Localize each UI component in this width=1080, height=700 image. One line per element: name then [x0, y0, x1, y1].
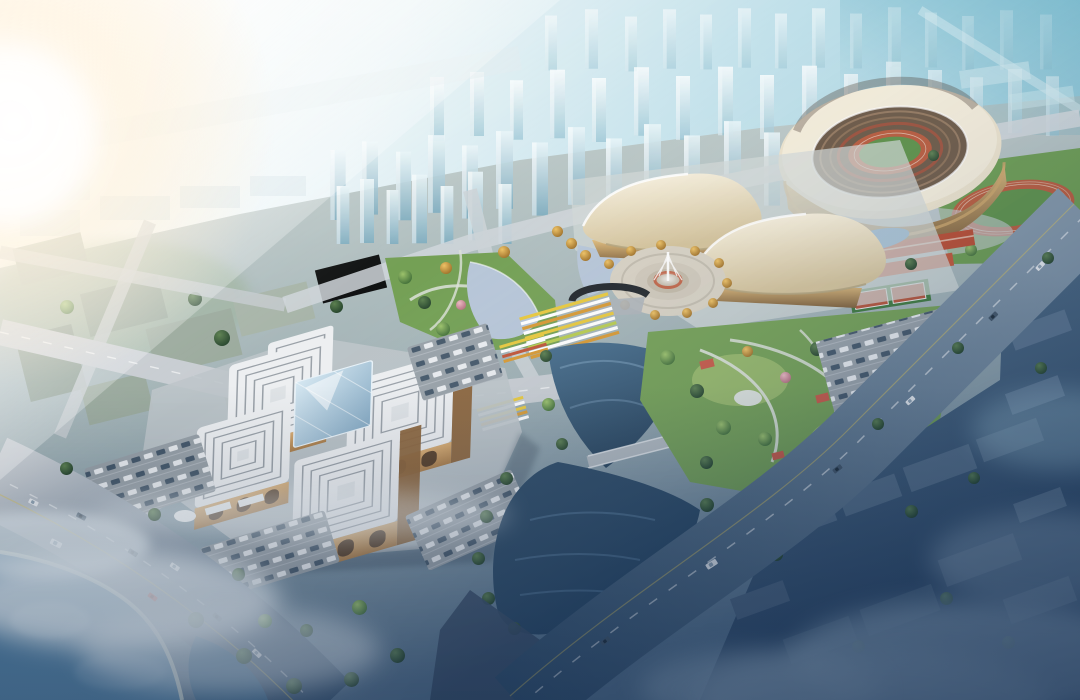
aerial-rendering-viewport: [0, 0, 1080, 700]
aerial-rendering: [0, 0, 1080, 700]
